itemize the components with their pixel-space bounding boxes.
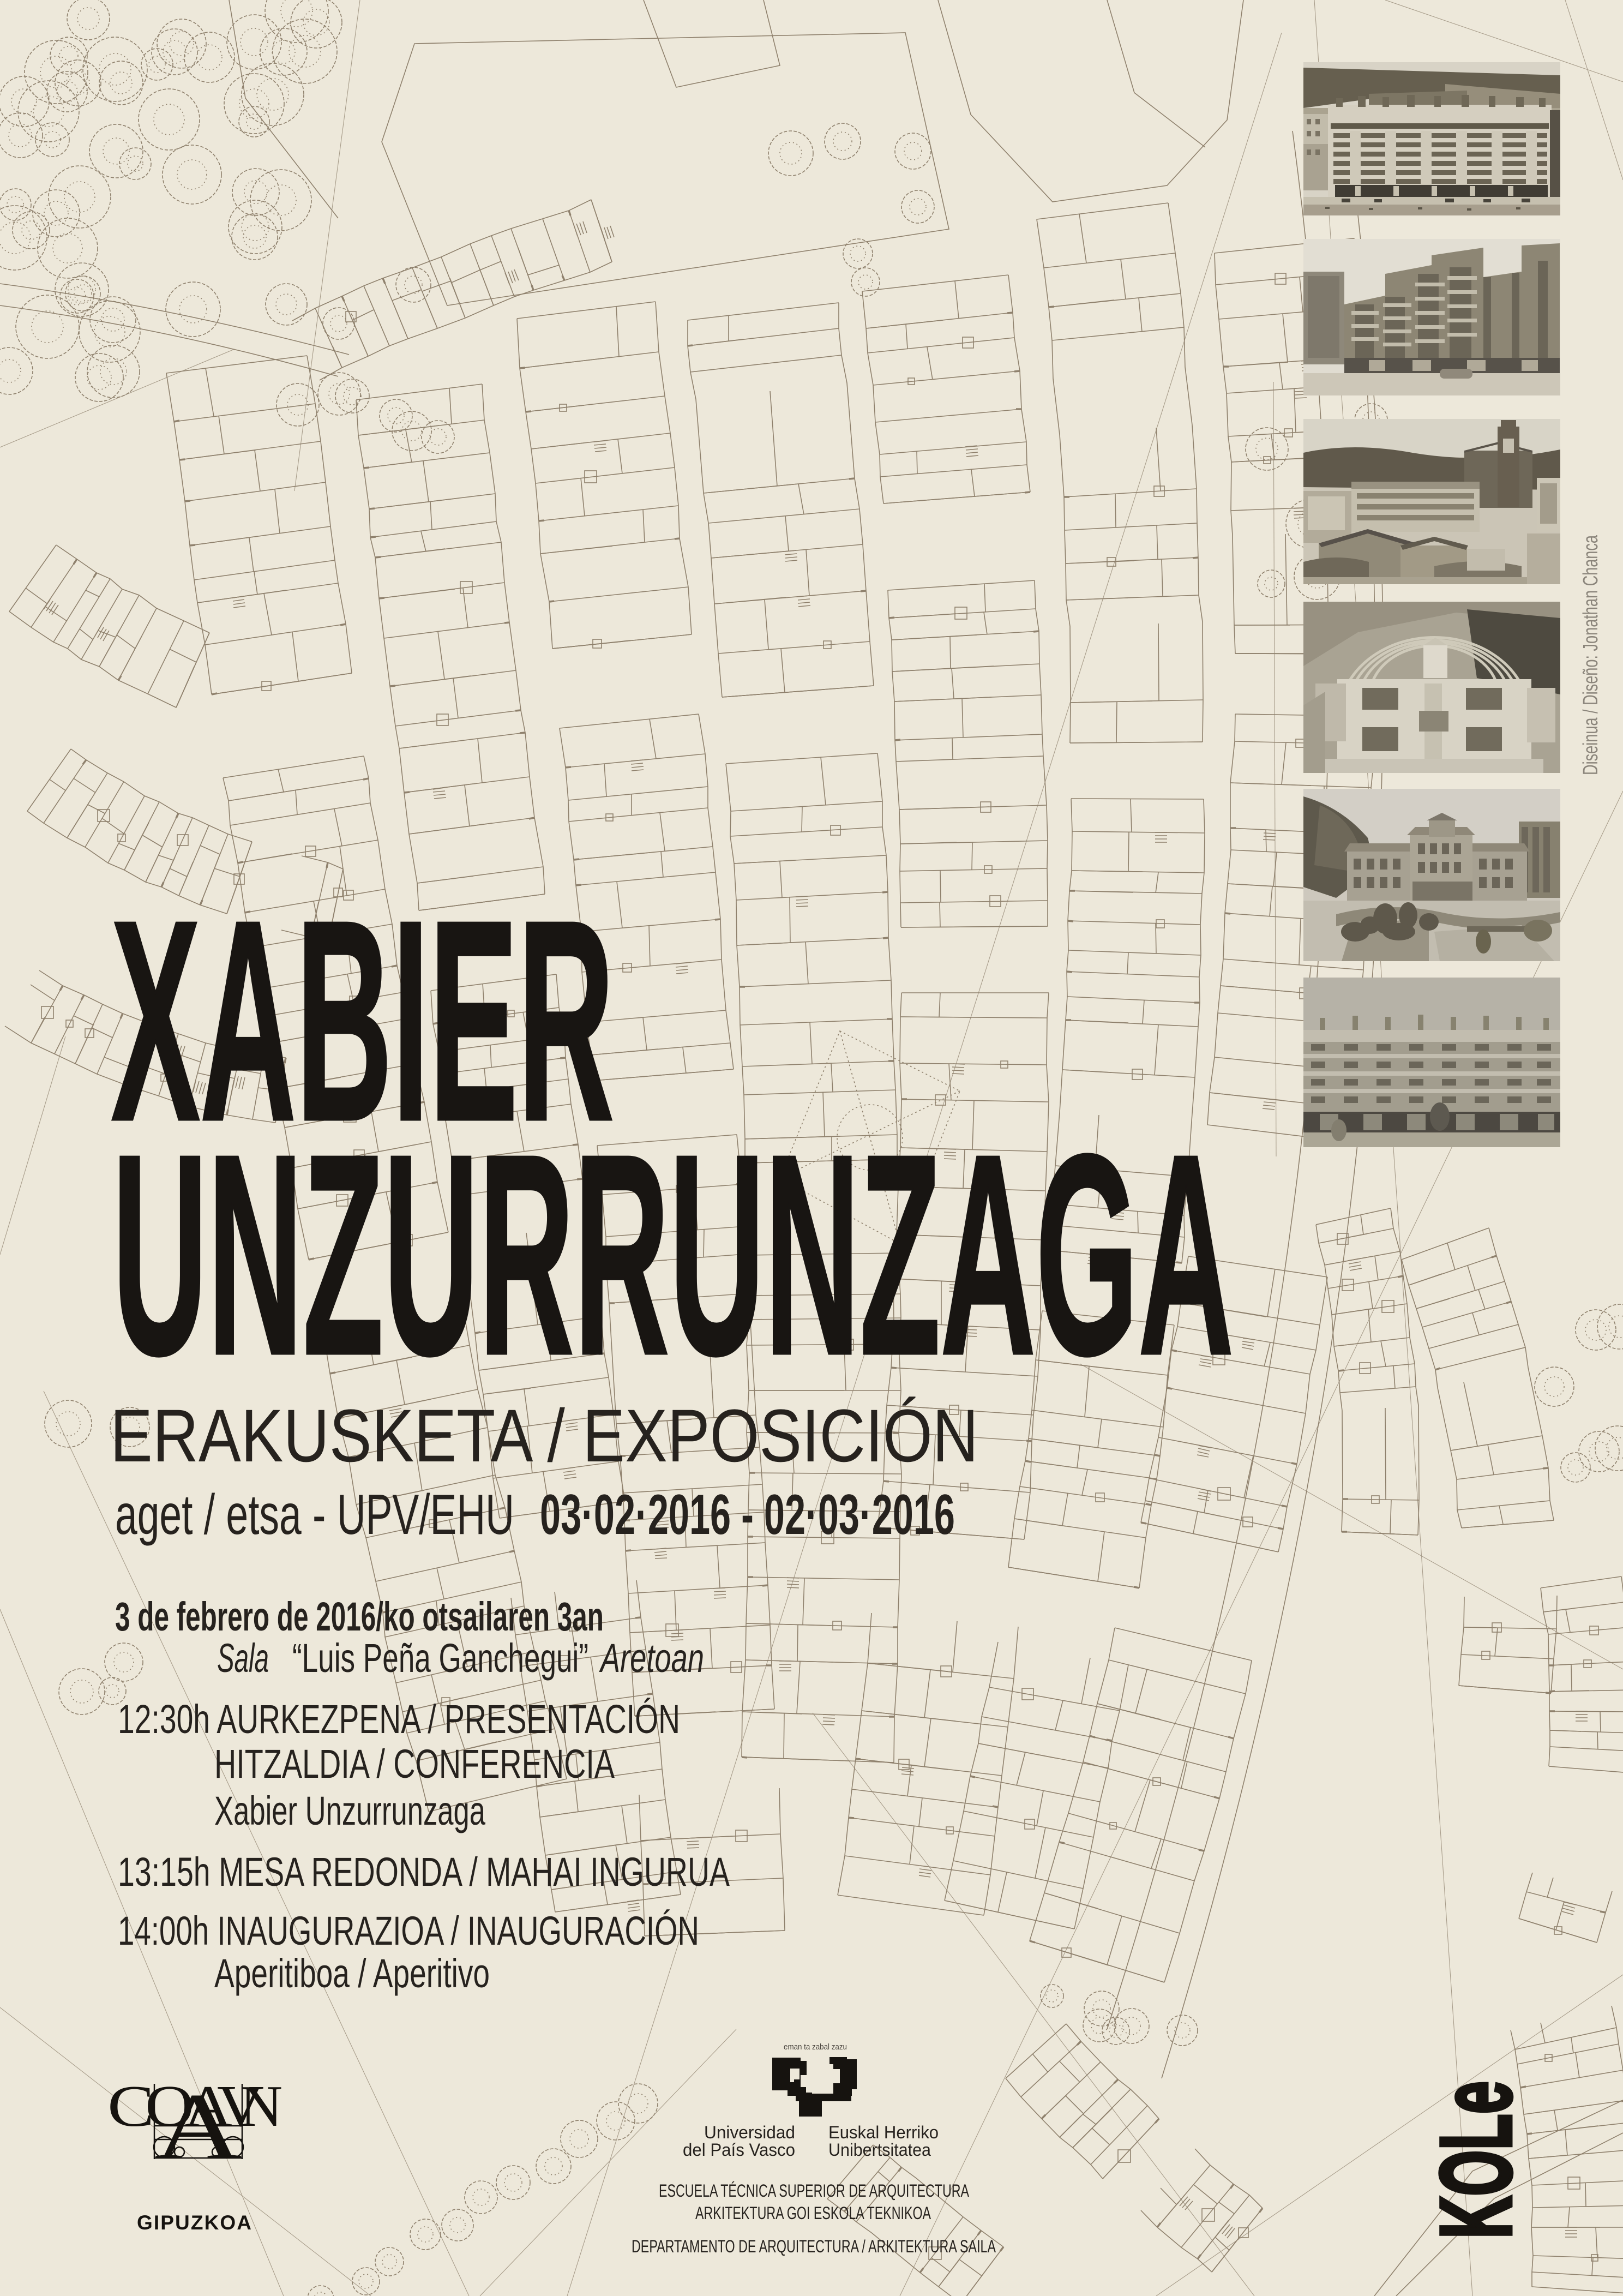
svg-text:Aretoan: Aretoan: [599, 1635, 704, 1681]
svg-text:Unibertsitatea: Unibertsitatea: [828, 2140, 931, 2160]
svg-text:ARKITEKTURA GOI ESKOLA TEKNIKO: ARKITEKTURA GOI ESKOLA TEKNIKOA: [695, 2203, 931, 2223]
svg-text:GIPUZKOA: GIPUZKOA: [137, 2211, 253, 2234]
svg-text:UNZURRUNZAGA: UNZURRUNZAGA: [112, 1095, 1234, 1414]
svg-text:ESCUELA TÉCNICA SUPERIOR DE AR: ESCUELA TÉCNICA SUPERIOR DE ARQUITECTURA: [659, 2181, 969, 2201]
svg-text:Universidad: Universidad: [704, 2123, 795, 2142]
svg-text:ERAKUSKETA / EXPOSICIÓN: ERAKUSKETA / EXPOSICIÓN: [110, 1394, 978, 1478]
svg-text:DEPARTAMENTO DE ARQUITECTURA /: DEPARTAMENTO DE ARQUITECTURA / ARKITEKTU…: [632, 2237, 996, 2256]
svg-text:KOLe: KOLe: [1420, 2081, 1532, 2239]
svg-text:12:30h AURKEZPENA / PRESENTACI: 12:30h AURKEZPENA / PRESENTACIÓN: [118, 1696, 680, 1742]
svg-text:HITZALDIA / CONFERENCIA: HITZALDIA / CONFERENCIA: [214, 1741, 615, 1787]
svg-text:Sala: Sala: [217, 1635, 269, 1681]
svg-text:A: A: [154, 2073, 242, 2179]
svg-text:“Luis Peña Ganchegui”: “Luis Peña Ganchegui”: [292, 1635, 588, 1681]
svg-text:14:00h INAUGURAZIOA / INAUGURA: 14:00h INAUGURAZIOA / INAUGURACIÓN: [118, 1908, 699, 1953]
svg-text:Diseinua / Diseño: Jonathan Ch: Diseinua / Diseño: Jonathan Chanca: [1579, 535, 1602, 775]
svg-text:del País Vasco: del País Vasco: [683, 2140, 795, 2160]
svg-text:13:15h MESA REDONDA / MAHAI IN: 13:15h MESA REDONDA / MAHAI INGURUA: [118, 1849, 730, 1895]
svg-text:Aperitiboa / Aperitivo: Aperitiboa / Aperitivo: [214, 1951, 490, 1996]
svg-text:03·02·2016 - 02·03·2016: 03·02·2016 - 02·03·2016: [540, 1483, 955, 1546]
svg-text:eman ta zabal zazu: eman ta zabal zazu: [784, 2043, 847, 2052]
svg-text:Xabier Unzurrunzaga: Xabier Unzurrunzaga: [214, 1788, 486, 1833]
svg-text:N: N: [240, 2074, 282, 2139]
svg-text:aget / etsa - UPV/EHU: aget / etsa - UPV/EHU: [115, 1483, 514, 1546]
svg-text:Euskal Herriko: Euskal Herriko: [828, 2123, 939, 2142]
svg-text:3 de febrero de 2016/ko otsail: 3 de febrero de 2016/ko otsailaren 3an: [115, 1594, 604, 1639]
